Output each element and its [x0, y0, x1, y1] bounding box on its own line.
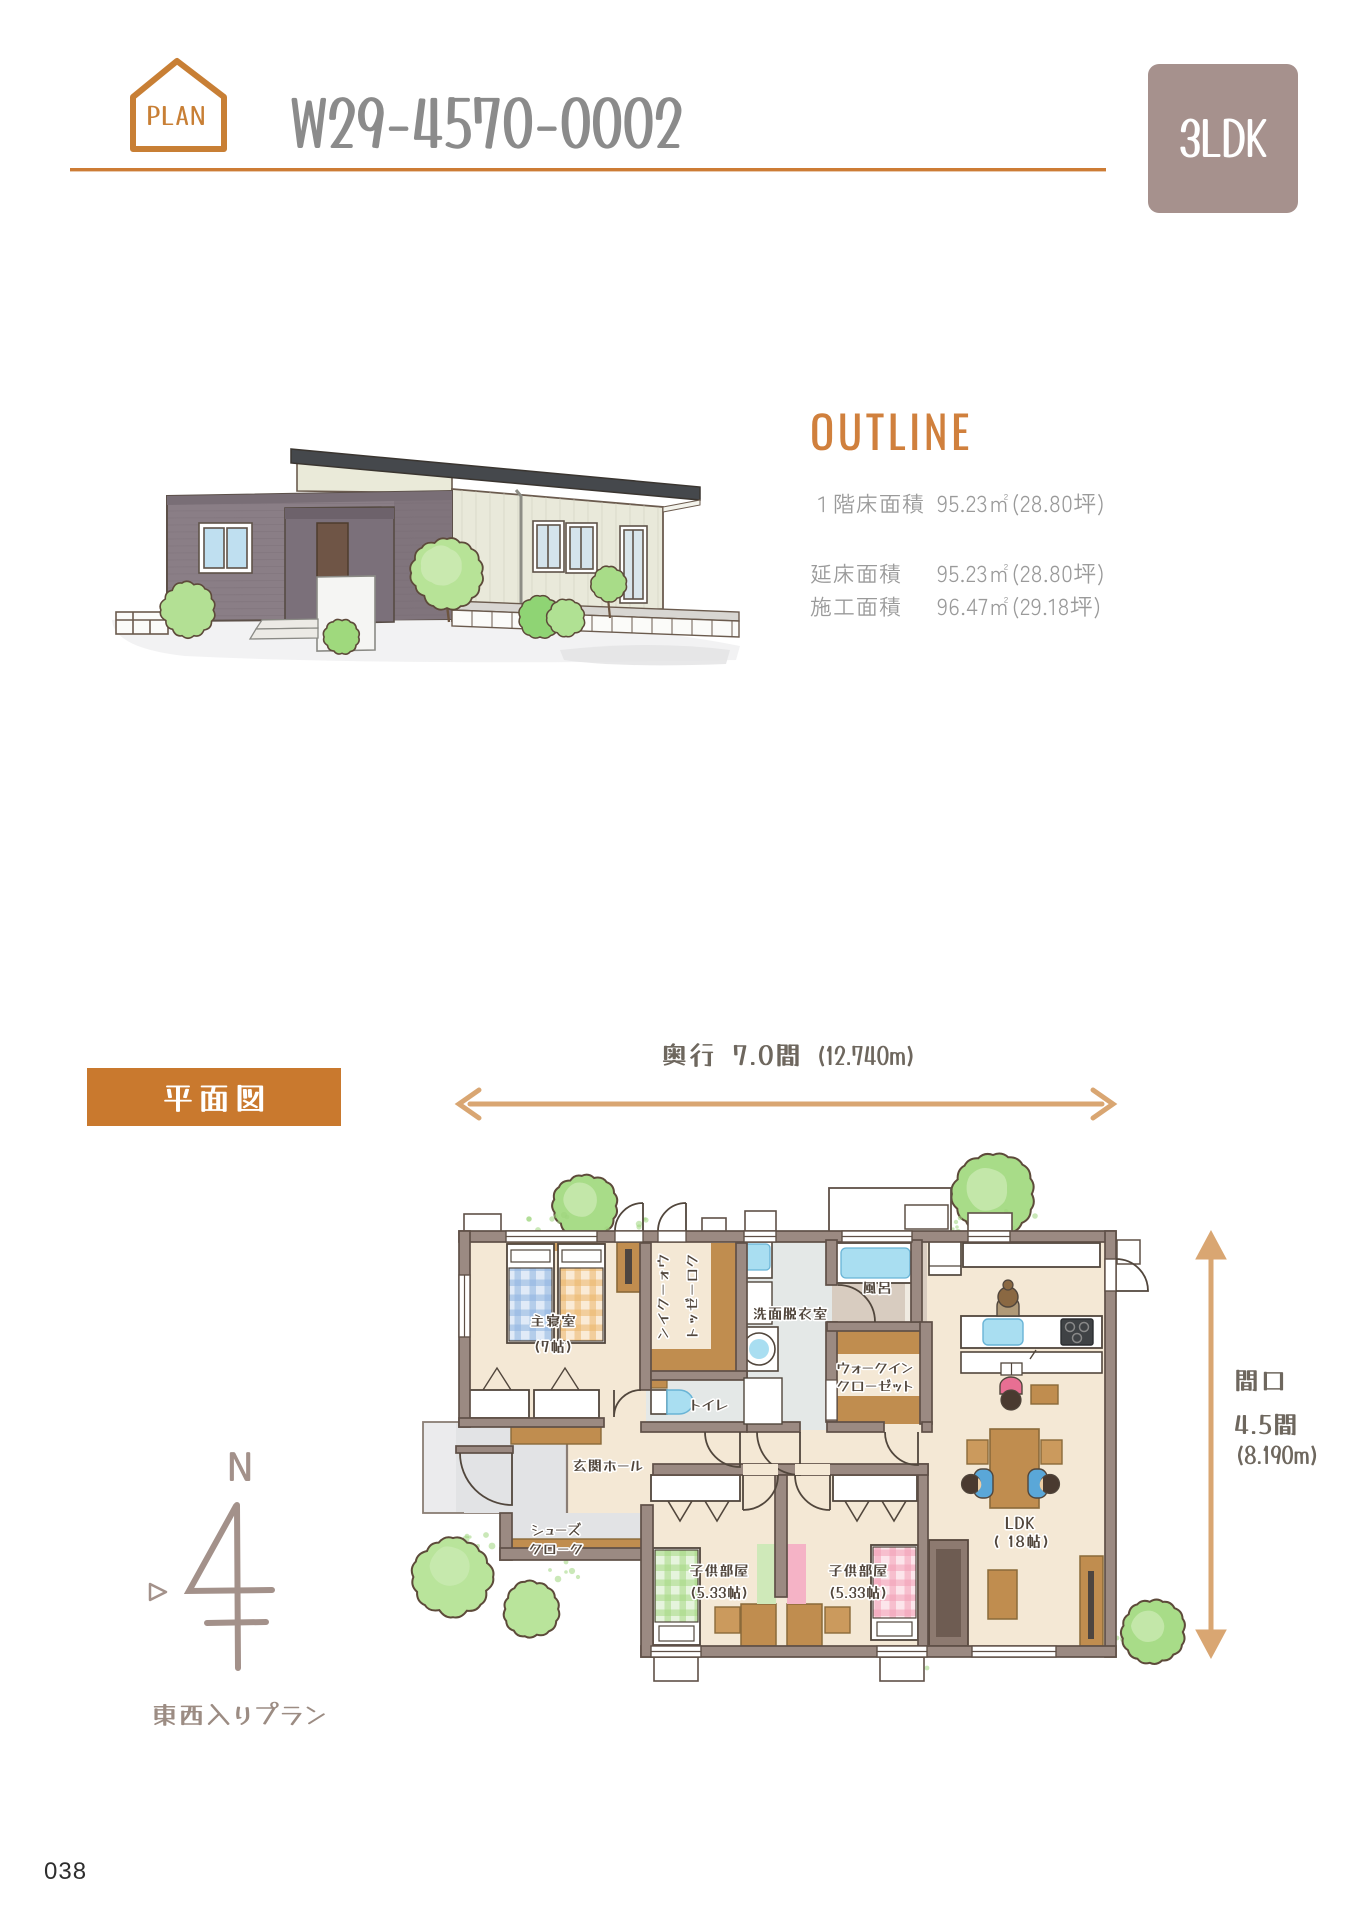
svg-text:038: 038: [44, 1858, 87, 1885]
